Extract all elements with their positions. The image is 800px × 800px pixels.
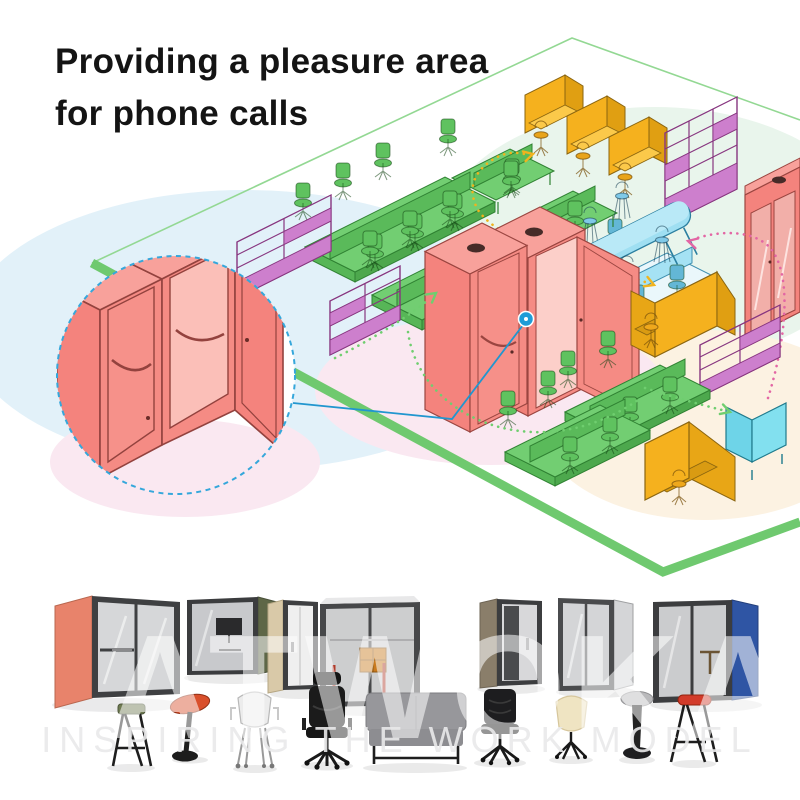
headline-line1: Providing a pleasure area bbox=[55, 36, 489, 88]
headline-line2: for phone calls bbox=[55, 88, 489, 140]
watermark-tagline: INSPIRING THE WORK MODEL bbox=[41, 719, 758, 760]
product-photo-strip: ATWOKA INSPIRING THE WORK MODEL bbox=[0, 590, 800, 800]
headline: Providing a pleasure area for phone call… bbox=[55, 36, 489, 140]
page: Providing a pleasure area for phone call… bbox=[0, 0, 800, 800]
booth-marker-dot bbox=[519, 312, 534, 327]
